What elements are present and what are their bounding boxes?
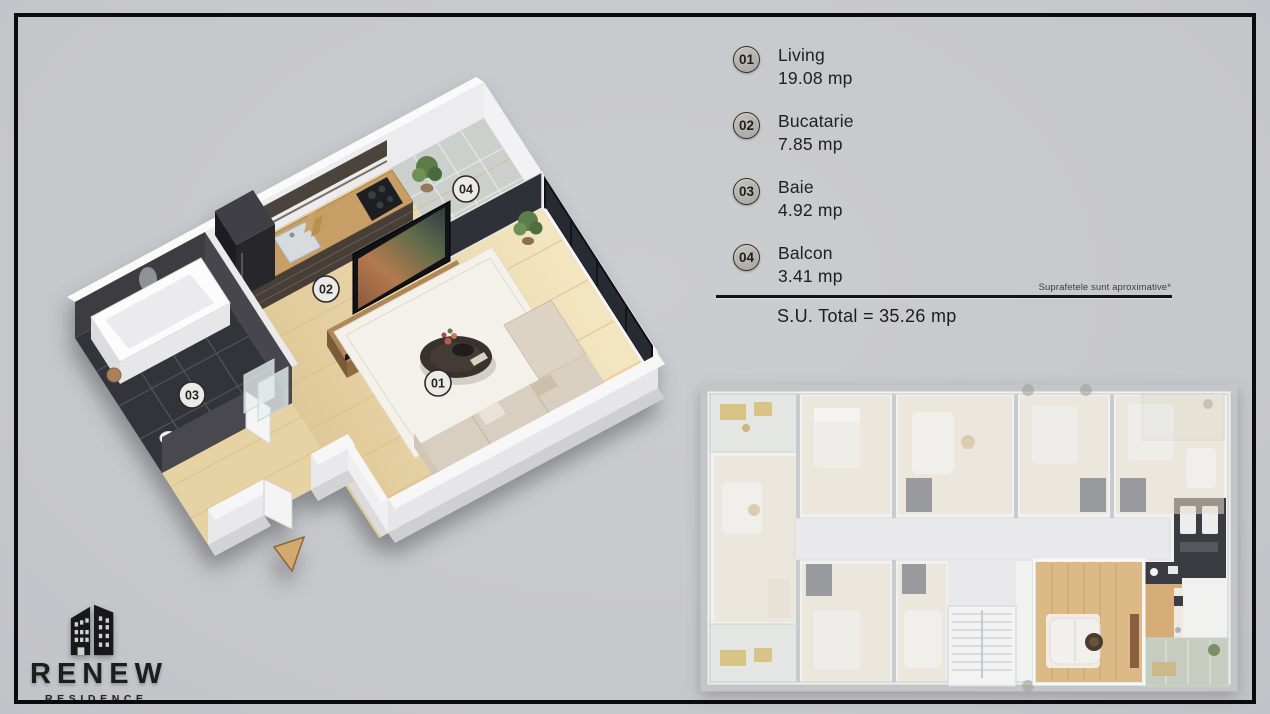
balcony-top-left [710, 394, 798, 452]
room-area: 4.92 mp [778, 199, 843, 222]
total-area: S.U. Total = 35.26 mp [777, 306, 957, 327]
page: 01 02 03 04 01 Living 19.08 mp [0, 0, 1270, 714]
brand-name: RENEW [30, 658, 260, 691]
room-legend: 01 Living 19.08 mp 02 Bucatarie 7.85 mp … [733, 44, 1173, 308]
legend-item-kitchen: 02 Bucatarie 7.85 mp [733, 110, 1173, 156]
unit-tv-console [1130, 614, 1139, 668]
stairwell [948, 606, 1016, 686]
brand-logo: RENEW RESIDENCE [30, 599, 260, 705]
legend-badge: 02 [733, 112, 760, 139]
brand-subtitle: RESIDENCE [45, 693, 260, 705]
entrance-arrow [274, 537, 304, 571]
badge-living: 01 [425, 370, 451, 396]
room-name: Baie [778, 176, 843, 199]
unit-balcony [1144, 638, 1228, 686]
isometric-apartment-render: 01 02 03 04 [30, 68, 690, 653]
approximation-note: Suprafetele sunt aproximative* [716, 282, 1171, 293]
legend-badge: 04 [733, 244, 760, 271]
room-area: 7.85 mp [778, 133, 854, 156]
wood-stool [107, 368, 121, 382]
legend-badge: 01 [733, 46, 760, 73]
legend-divider [716, 295, 1172, 298]
badge-bath: 03 [179, 382, 205, 408]
legend-item-bath: 03 Baie 4.92 mp [733, 176, 1173, 222]
room-name: Bucatarie [778, 110, 854, 133]
room-name: Balcon [778, 242, 843, 265]
room-name: Living [778, 44, 853, 67]
svg-text:04: 04 [459, 183, 473, 197]
corridor [794, 518, 1170, 560]
balcony-bottom-left [710, 624, 798, 682]
badge-kitchen: 02 [313, 276, 339, 302]
svg-text:03: 03 [185, 389, 199, 403]
badge-balcony: 04 [453, 176, 479, 202]
room-area: 19.08 mp [778, 67, 853, 90]
buildings-icon [66, 599, 122, 657]
legend-badge: 03 [733, 178, 760, 205]
legend-item-living: 01 Living 19.08 mp [733, 44, 1173, 90]
building-floor-overview [698, 378, 1240, 698]
svg-text:01: 01 [431, 377, 445, 391]
svg-text:02: 02 [319, 283, 333, 297]
